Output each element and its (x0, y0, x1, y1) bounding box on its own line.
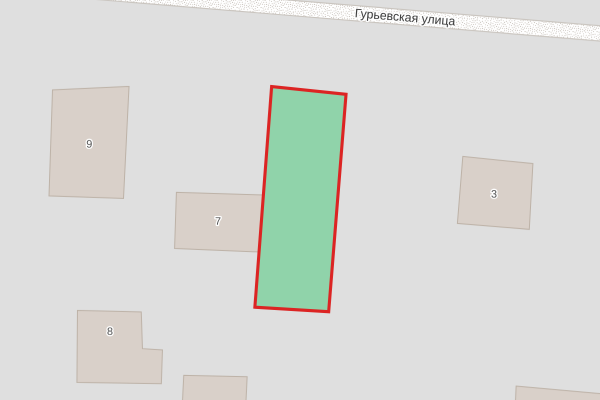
svg-text:8: 8 (107, 326, 113, 338)
svg-text:7: 7 (215, 216, 221, 228)
svg-text:3: 3 (491, 189, 497, 201)
svg-text:9: 9 (86, 139, 92, 151)
